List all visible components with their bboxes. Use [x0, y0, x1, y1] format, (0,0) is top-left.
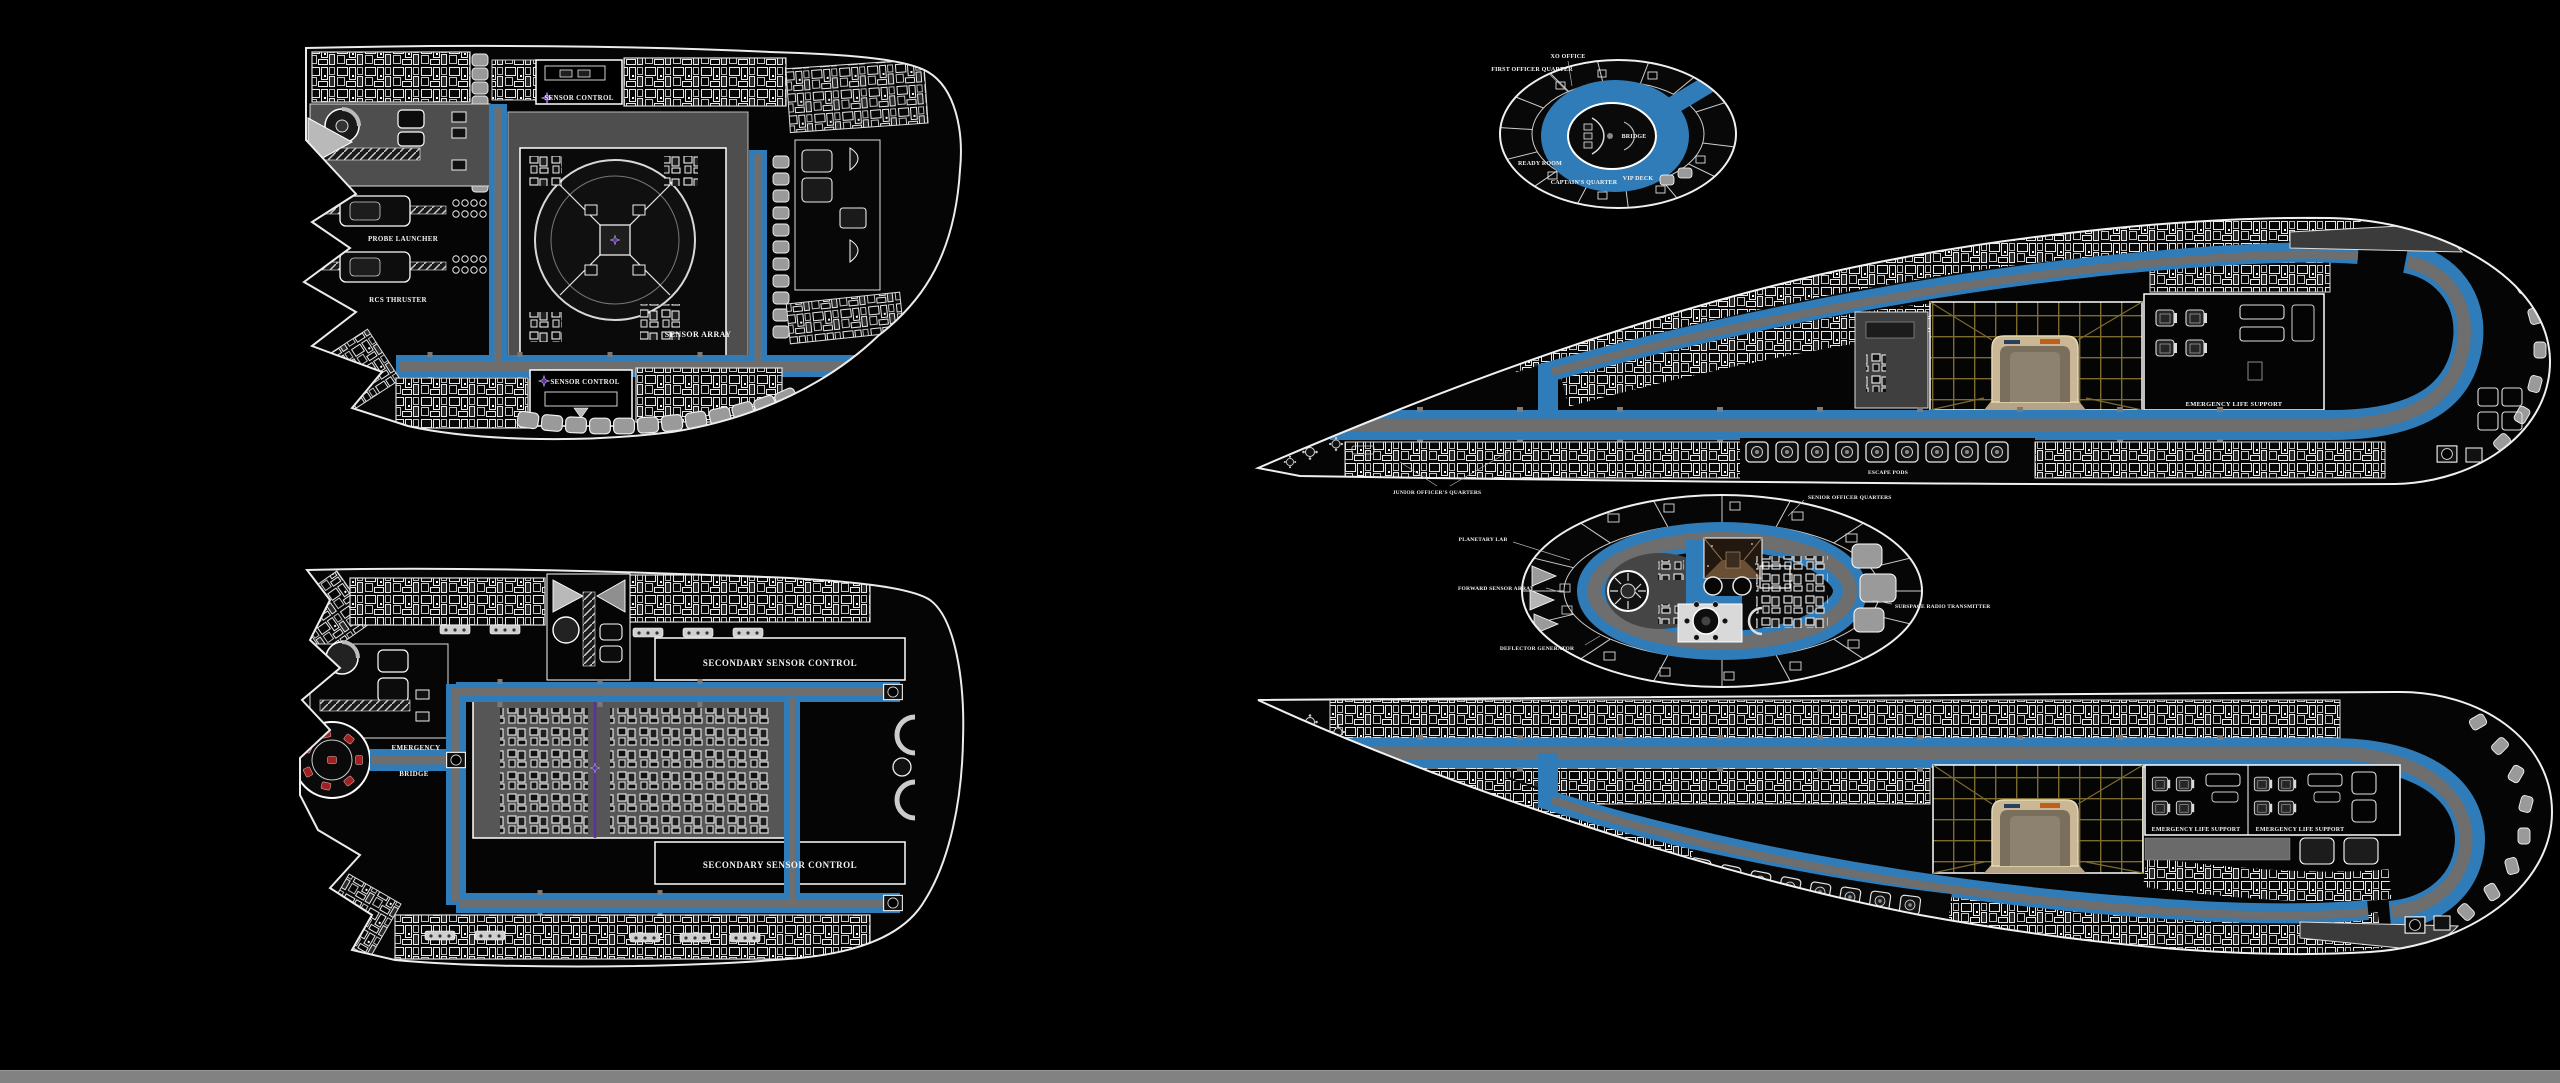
label-deflector-generator: DEFLECTOR GENERATOR — [1500, 646, 1575, 652]
turbolift-icon — [884, 895, 903, 910]
label-vip-deck: VIP DECK — [1623, 176, 1654, 182]
bottom-bar — [0, 1071, 2560, 1083]
emergency-life-support-room — [2144, 294, 2324, 410]
starboard-rooms — [795, 140, 880, 290]
label-sensor-control-top: SENSOR CONTROL — [544, 94, 613, 102]
label-ready-room: READY ROOM — [1518, 161, 1562, 167]
label-emergency-life-support-port: EMERGENCY LIFE SUPPORT — [2152, 827, 2241, 833]
turbolift-icon — [2405, 917, 2425, 933]
label-sensor-array: SENSOR ARRAY — [665, 330, 732, 339]
label-emergency-bridge: BRIDGE — [399, 770, 428, 778]
crew-quarters-band — [312, 52, 470, 102]
viewscreen-image-room — [1704, 538, 1762, 578]
label-xo-office: XO OFFICE — [1551, 54, 1586, 60]
inner-starboard-machinery — [1756, 556, 1828, 628]
label-junior-officers-quarters: JUNIOR OFFICER'S QUARTERS — [1393, 490, 1482, 496]
deck-secondary-sensor: SECONDARY SENSOR CONTROL SECONDARY SENSO… — [289, 569, 963, 967]
label-first-officer-quarter: FIRST OFFICER QUARTER — [1491, 67, 1573, 73]
holodeck-arch — [1992, 336, 2078, 402]
label-secondary-sensor-control-bottom: SECONDARY SENSOR CONTROL — [703, 860, 857, 870]
blueprint-svg: SENSOR CONTROL SENSOR ARRAY SENSOR CONTR… — [0, 0, 2560, 1083]
label-planetary-lab: PLANETARY LAB — [1459, 537, 1508, 543]
label-sensor-control-bottom: SENSOR CONTROL — [550, 378, 619, 386]
label-emergency: EMERGENCY — [392, 744, 441, 752]
label-captains-quarter: CAPTAIN'S QUARTER — [1551, 180, 1618, 186]
turbolift-icon — [2437, 446, 2457, 462]
emergency-life-support-rooms — [2145, 765, 2400, 835]
label-probe-launcher: PROBE LAUNCHER — [368, 235, 439, 243]
label-bridge: BRIDGE — [1622, 134, 1647, 140]
machinery-column — [547, 574, 630, 680]
upper-quarters-band — [1330, 700, 2340, 738]
holodeck — [1930, 302, 2142, 410]
starship-deck-plan-sheet: SENSOR CONTROL SENSOR ARRAY SENSOR CONTR… — [0, 0, 2560, 1083]
lower-quarters-band-right — [2035, 442, 2385, 478]
label-emergency-life-support-starboard: EMERGENCY LIFE SUPPORT — [2256, 827, 2345, 833]
lower-quarters-band-left — [1345, 442, 1745, 478]
turbolift-icon — [884, 684, 903, 699]
holodeck — [1933, 765, 2143, 873]
label-secondary-sensor-control-top: SECONDARY SENSOR CONTROL — [703, 658, 857, 668]
label-escape-pods: ESCAPE PODS — [1868, 470, 1908, 476]
label-emergency-life-support: EMERGENCY LIFE SUPPORT — [2186, 401, 2283, 408]
label-senior-officer-quarters: SENIOR OFFICER QUARTERS — [1808, 495, 1892, 501]
label-rcs-thruster: RCS THRUSTER — [369, 296, 427, 304]
holodeck-arch — [1992, 800, 2078, 866]
turbolift-icon — [447, 752, 466, 767]
label-forward-sensor-array: FORWARD SENSOR ARRAY — [1458, 586, 1534, 592]
briefing-room — [1855, 312, 1928, 408]
label-subspace-radio-transmitter: SUBSPACE RADIO TRANSMITTER — [1895, 604, 1991, 610]
computer-core-room — [473, 700, 785, 838]
